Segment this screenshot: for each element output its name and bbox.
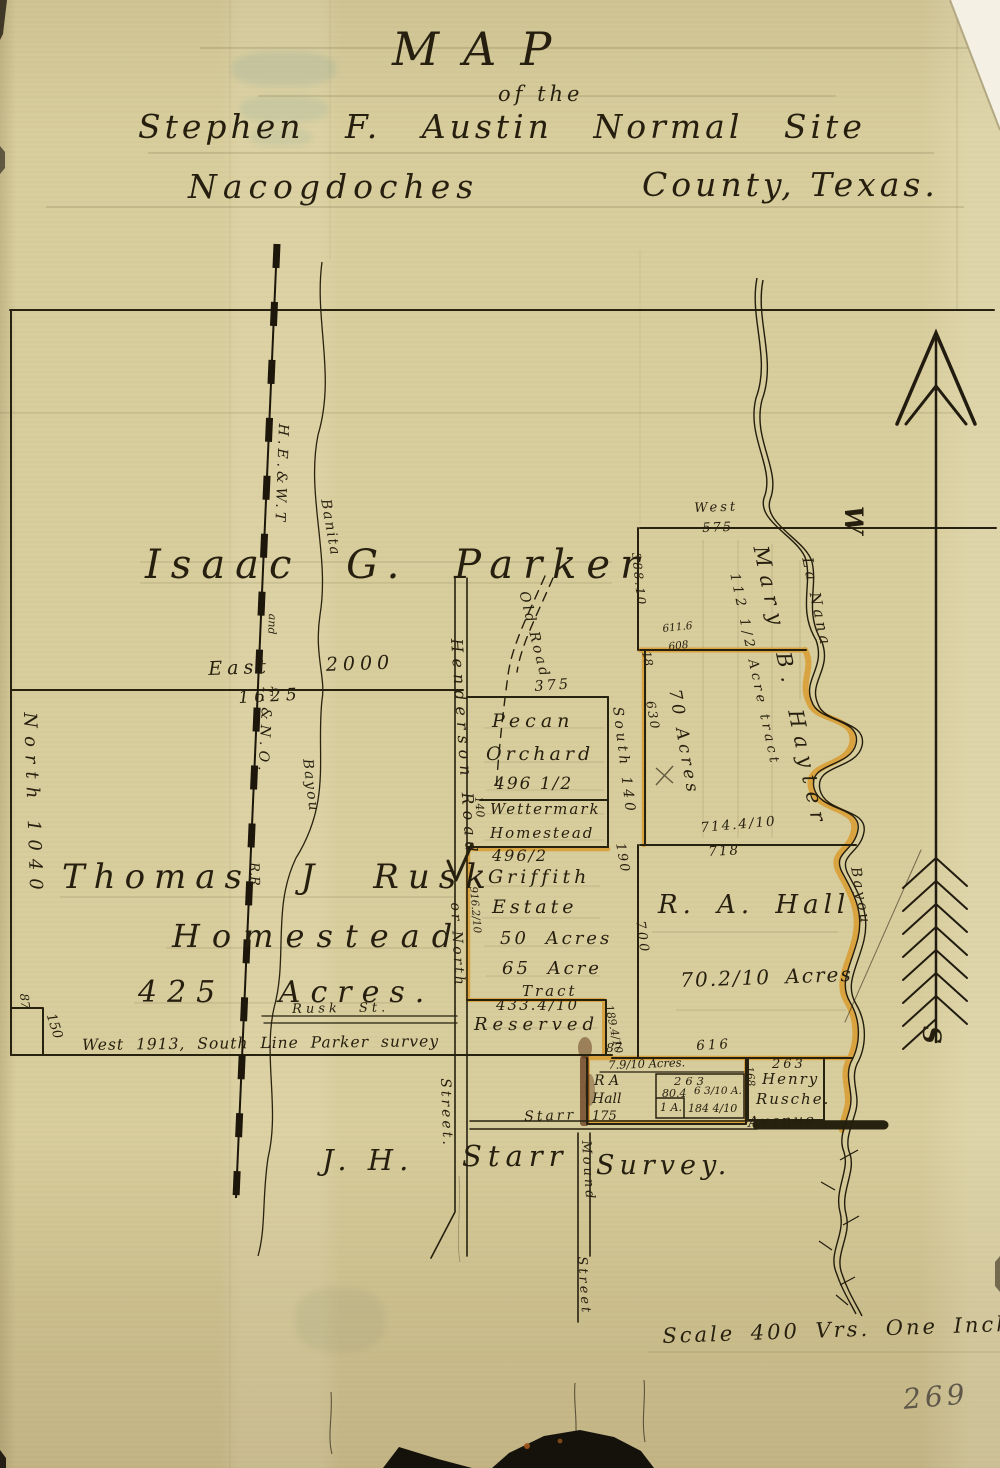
compass-west-label: W xyxy=(841,506,866,534)
pecan-orchard-dim: 496 1/2 xyxy=(494,776,573,793)
hayter-south-dim-2: 718 xyxy=(708,844,740,859)
griffith-name-2: Estate xyxy=(492,898,577,917)
pecan-orchard-name-2: Orchard xyxy=(486,745,594,764)
griffith-name-1: Griffith xyxy=(488,868,590,887)
reserved-dim: 433.4/10 xyxy=(496,998,579,1013)
parker-west-dim: North 1040 xyxy=(20,712,44,898)
hall-small-acres: 7.9/10 Acres. xyxy=(608,1057,685,1071)
map-title-line3: Stephen F. Austin Normal Site xyxy=(138,110,866,143)
paper-tear xyxy=(383,1430,654,1468)
henderson-road-label-3: Street. xyxy=(438,1078,454,1148)
starr-survey-label-3: Survey. xyxy=(596,1152,731,1179)
pencil-x-mark xyxy=(656,766,673,785)
parker-notch-dim-87: 87 xyxy=(18,993,31,1009)
griffith-acres: 50 Acres xyxy=(500,930,612,948)
wettermark-name-2: Homestead xyxy=(490,826,594,841)
hall-owner-label: R. A. Hall xyxy=(658,892,850,918)
hall-acres-label: 70.2/10 Acres xyxy=(680,964,853,990)
railroad-label-2: and xyxy=(266,614,278,635)
starr-survey-label-1: J. H. xyxy=(322,1146,414,1175)
map-linework xyxy=(0,0,1000,1468)
map-title-line4b: County, Texas. xyxy=(642,168,939,201)
wettermark-dim: 496/2 xyxy=(492,848,548,864)
page-number: 269 xyxy=(902,1380,970,1414)
map-title: MAP xyxy=(392,26,575,72)
hayter-mid-dim-2: 608 xyxy=(668,640,689,653)
rusche-owner-1: Henry xyxy=(762,1072,819,1087)
reserved-corner-dim: 87 xyxy=(606,1042,622,1055)
hayter-west-dim-2: 18 xyxy=(640,650,654,667)
mound-street-label-1: Mound xyxy=(579,1140,596,1202)
mound-street-label-2: Street xyxy=(575,1256,592,1316)
rusk-owner-label: Thomas J Rusk xyxy=(62,860,495,894)
rusk-street-label: Rusk St. xyxy=(292,1001,389,1016)
starr-avenue-label-1: Starr xyxy=(524,1108,576,1124)
rusk-homestead-label: Homestead xyxy=(172,920,464,952)
hall-south-dim: 616 xyxy=(696,1038,731,1053)
wettermark-name-1: Wettermark xyxy=(490,802,601,817)
hayter-top-dim: 575 xyxy=(702,521,733,535)
hall-small-dim-63: 6 3/10 A. xyxy=(694,1086,742,1097)
hall-small-owner-2: Hall xyxy=(592,1092,622,1106)
henderson-road-label-2: or North xyxy=(448,902,466,988)
map-title-line4a: Nacogdoches xyxy=(188,170,479,203)
parker-owner-label: Isaac G. Parker xyxy=(145,545,649,585)
hall-small-dim-1a: 1 A. xyxy=(660,1102,682,1113)
griffith-tract-1: 65 Acre xyxy=(502,960,602,978)
parker-south-line-label: West 1913, South Line Parker survey xyxy=(82,1034,439,1053)
map-subtitle: of the xyxy=(498,84,583,105)
starr-survey-label-2: Starr xyxy=(462,1142,569,1171)
rusche-owner-2: Rusche. xyxy=(756,1092,830,1107)
map-sheet: MAP of the Stephen F. Austin Normal Site… xyxy=(0,0,1000,1468)
compass-needle xyxy=(845,333,975,1049)
railroad-label-4: R.R. xyxy=(247,862,261,890)
hall-small-dim-175: 175 xyxy=(592,1110,617,1123)
reserved-name: Reserved xyxy=(474,1016,599,1034)
hayter-top-label: West xyxy=(694,500,738,515)
starr-avenue-label-2: Avenue xyxy=(748,1113,816,1130)
hall-small-dim-804: 80.4 xyxy=(662,1088,687,1099)
pecan-orchard-name-1: Pecan xyxy=(492,712,574,731)
hall-small-owner-1: R A xyxy=(594,1074,619,1088)
railroad-label-1: H.E.&W.T xyxy=(272,424,290,526)
old-road-dim: 375 xyxy=(534,677,572,694)
pecan-orchard-west-dim: 140 xyxy=(473,796,486,818)
compass-south-label: S xyxy=(919,1026,944,1044)
hall-small-dim-184: 184 4/10 xyxy=(688,1103,737,1114)
rusk-acres-label: 425 Acres. xyxy=(138,978,434,1008)
hall-small-east-dim: 168 xyxy=(744,1066,756,1087)
